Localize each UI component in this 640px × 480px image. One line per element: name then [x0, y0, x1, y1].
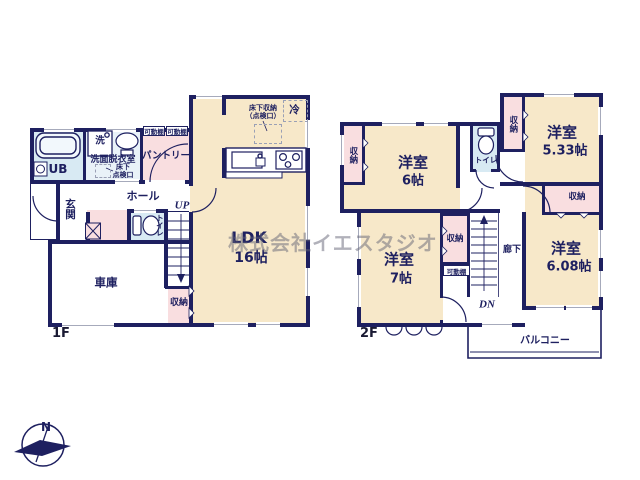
watermark: 株式会社イエスタジオ — [228, 227, 438, 256]
floorplan-canvas: N UB 洗 洗面脱衣室 床下 点検口 可動棚 可動棚 パントリー 玄関 ホール… — [0, 0, 640, 480]
window — [598, 271, 603, 297]
label-up: UP — [175, 200, 190, 213]
label-closet-e: 収納 — [568, 193, 585, 203]
wall — [86, 212, 90, 240]
wall — [470, 125, 473, 172]
label-washer: 洗 — [95, 137, 105, 148]
wall — [522, 97, 525, 152]
window — [44, 127, 74, 132]
label-closet-nw: 収納 — [347, 147, 357, 164]
label-shelf2: 可動棚 — [166, 126, 188, 136]
wall — [48, 240, 193, 244]
label-floor1: 1F — [52, 327, 70, 342]
wall — [56, 184, 60, 240]
wall — [542, 212, 603, 215]
wall — [189, 212, 193, 327]
wall — [127, 209, 131, 240]
wall — [500, 93, 504, 152]
wall — [491, 169, 500, 172]
label-room7-size: 7帖 — [390, 273, 412, 288]
window — [214, 322, 248, 327]
wall — [500, 149, 525, 152]
wall — [500, 182, 603, 186]
label-garage: 車庫 — [95, 276, 118, 289]
label-floor-hatch: 床下 点検口 — [113, 163, 134, 179]
compass-north-label: N — [41, 420, 51, 434]
wall — [83, 130, 86, 182]
sliding-door-mark — [134, 208, 156, 213]
wall — [222, 148, 226, 178]
window — [339, 135, 344, 165]
window — [536, 305, 564, 310]
label-room608-size: 6.08帖 — [546, 261, 591, 276]
label-room533: 洋室 — [547, 124, 577, 141]
room-ldk — [190, 95, 310, 327]
label-room608: 洋室 — [551, 240, 581, 257]
window — [305, 268, 310, 296]
porch-outline — [30, 182, 57, 240]
label-balcony: バルコニー — [520, 335, 570, 347]
window — [382, 121, 416, 126]
wall — [470, 169, 476, 172]
window — [196, 94, 222, 99]
wall — [164, 209, 168, 288]
wall — [522, 212, 526, 306]
room-closet-hall — [87, 210, 127, 240]
label-room6: 洋室 — [398, 154, 428, 171]
wall — [362, 125, 365, 185]
wall — [222, 95, 226, 115]
window — [256, 322, 280, 327]
window — [305, 120, 310, 148]
label-ub: UB — [49, 163, 68, 177]
label-floor2: 2F — [360, 327, 378, 342]
label-pantry: パントリー — [142, 152, 190, 163]
wall — [467, 213, 470, 297]
label-toilet-1f: トイレ — [155, 214, 164, 237]
wall — [189, 95, 193, 186]
wall — [340, 182, 365, 185]
label-shelf-2f: 可動棚 — [443, 265, 470, 276]
wall — [456, 122, 460, 188]
balcony-outline — [468, 310, 601, 358]
window — [106, 127, 136, 132]
wall — [48, 240, 52, 327]
label-closet-ne: 収納 — [507, 116, 517, 133]
label-underfloor-storage: 床下収納 （点検口） — [246, 104, 281, 120]
label-room533-size: 5.33帖 — [542, 145, 587, 160]
label-toilet-2f: トイレ — [475, 157, 498, 166]
label-hall: ホール — [127, 191, 160, 204]
wall — [443, 213, 470, 216]
window — [482, 322, 512, 327]
sliding-door-mark — [115, 179, 139, 184]
label-fridge: 冷 — [289, 104, 300, 116]
label-dn: DN — [479, 299, 495, 312]
window — [356, 275, 361, 307]
window — [424, 121, 448, 126]
wall — [460, 209, 500, 213]
compass-icon: N — [14, 420, 71, 466]
floor-hatch-box — [95, 164, 111, 178]
label-shelf1: 可動棚 — [143, 126, 165, 136]
underfloor-storage-box — [254, 124, 282, 144]
label-room6-size: 6帖 — [402, 175, 424, 190]
window — [544, 92, 574, 97]
window — [566, 305, 592, 310]
label-entrance: 玄関 — [64, 199, 76, 220]
label-corridor: 廊下 — [503, 245, 521, 255]
window — [598, 107, 603, 135]
wall — [30, 128, 34, 184]
label-closet-c: 収納 — [446, 235, 463, 245]
window — [598, 230, 603, 258]
stairs-1f — [168, 212, 189, 284]
wall — [189, 323, 310, 327]
label-storage-1f: 収納 — [170, 298, 188, 308]
wall — [542, 186, 545, 212]
stairs-2f — [471, 213, 499, 297]
wall — [440, 213, 443, 298]
